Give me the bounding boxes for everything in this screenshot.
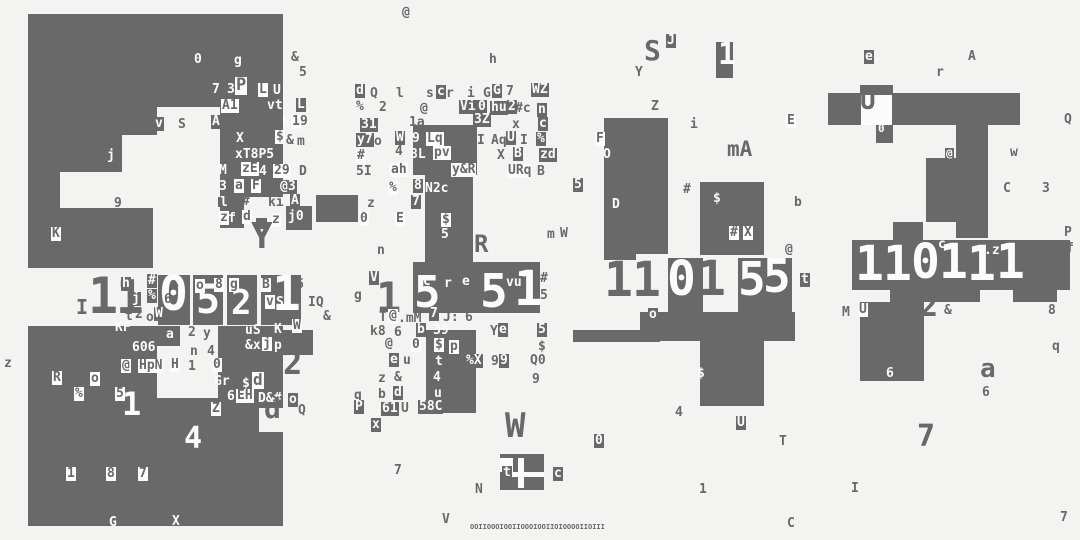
glyph: &: [323, 310, 331, 324]
glyph: 39: [433, 324, 449, 338]
ink-block: [1013, 290, 1057, 302]
glyph: W: [395, 131, 405, 145]
glyph: 1: [699, 483, 707, 497]
ink-block: [28, 172, 60, 208]
glyph: 31: [360, 118, 378, 132]
glyph: 4: [675, 406, 683, 420]
glyph: J: [666, 34, 676, 48]
glyph: q: [1052, 340, 1060, 354]
ink-block: [316, 195, 358, 222]
glyph: pv: [433, 146, 451, 160]
big-glyph: mA: [727, 138, 752, 160]
glyph: &x: [245, 339, 261, 353]
glyph: 9: [491, 355, 499, 369]
big-glyph: 5: [480, 267, 508, 315]
glyph: e: [171, 280, 179, 294]
glyph: 3: [1042, 182, 1050, 196]
big-glyph: 2: [920, 291, 938, 323]
glyph: Lq: [426, 132, 444, 146]
glyph: @: [420, 102, 428, 116]
glyph: 29: [273, 164, 291, 178]
glyph: 1a: [409, 116, 425, 130]
glyph: o: [374, 135, 382, 149]
glyph: 7: [394, 464, 402, 478]
glyph: o: [146, 311, 154, 325]
glyph: vu: [505, 276, 523, 290]
glyph: EH: [236, 389, 254, 403]
glyph: %X: [465, 354, 483, 368]
glyph: f: [1066, 242, 1074, 256]
glyph: $: [538, 340, 546, 354]
glyph: @: [945, 148, 954, 160]
big-glyph: 1: [122, 388, 141, 422]
glyph: G: [109, 516, 117, 530]
bg-cutout: [122, 160, 157, 172]
glyph: 5I: [356, 165, 372, 179]
glyph: vt: [267, 99, 283, 113]
glyph: E: [395, 212, 405, 226]
glyph: 6: [982, 386, 990, 400]
glyph: &: [394, 371, 402, 385]
glyph: t: [502, 466, 512, 480]
big-glyph: 1: [855, 239, 884, 289]
glyph: H: [170, 358, 180, 372]
glyph: B: [261, 278, 271, 292]
glyph: r: [444, 277, 452, 291]
glyph: o: [288, 393, 298, 407]
big-glyph: 4: [184, 423, 202, 455]
glyph: 6: [296, 278, 304, 292]
glyph: b: [416, 323, 426, 337]
glyph: 61: [381, 402, 399, 416]
glyph: p: [449, 340, 459, 354]
glyph: I: [477, 134, 485, 148]
glyph: c: [938, 238, 946, 252]
glyph: @: [121, 359, 131, 373]
big-glyph: 0: [667, 254, 696, 304]
glyph: 8: [1048, 304, 1056, 318]
glyph: j: [262, 337, 272, 351]
glyph: e: [498, 323, 508, 337]
glyph: Q: [298, 404, 306, 418]
glyph: c: [423, 275, 431, 289]
glyph: &: [944, 304, 952, 318]
glyph: y: [203, 327, 211, 341]
glyph: p: [274, 339, 282, 353]
glyph: uS: [245, 324, 261, 338]
glyph: IQ: [308, 296, 324, 310]
glyph: g: [354, 289, 362, 303]
glyph: %: [536, 132, 546, 146]
glyph: g: [229, 278, 239, 292]
glyph: c: [553, 467, 563, 481]
glyph: 4: [259, 165, 267, 179]
glyph: A: [968, 50, 976, 64]
glyph: X: [497, 149, 505, 163]
bg-cutout: [153, 207, 220, 268]
glyph: #: [540, 272, 548, 286]
big-glyph: 2: [283, 347, 302, 381]
glyph: z: [4, 357, 12, 371]
glyph: 8L: [410, 148, 426, 162]
glyph: c: [538, 117, 548, 131]
big-glyph: S: [644, 36, 661, 65]
glyph: HpN: [138, 359, 163, 373]
glyph: b: [794, 196, 802, 210]
glyph: #: [356, 149, 366, 163]
glyph: P: [354, 400, 364, 414]
glyph: s: [426, 87, 434, 101]
glyph: 6: [227, 390, 235, 404]
glyph: j0: [288, 210, 304, 224]
glyph: xT8P5: [235, 148, 274, 162]
glyph: K: [274, 323, 282, 337]
glyph: T: [779, 435, 787, 449]
glyph: #: [729, 226, 739, 240]
glyph: U: [736, 416, 746, 430]
ink-block: [28, 107, 157, 135]
glyph: T: [379, 311, 387, 325]
glyph: 7: [138, 467, 148, 481]
glyph: A: [211, 115, 221, 129]
glyph: z: [367, 197, 375, 211]
glyph: O: [603, 148, 611, 162]
glyph: 7: [429, 307, 439, 321]
big-glyph: W: [505, 409, 525, 445]
glyph: &: [291, 51, 299, 65]
glyph: y7: [356, 133, 374, 147]
glyph: L: [296, 98, 306, 112]
glyph: 3: [227, 83, 235, 97]
glyph: 7: [506, 85, 514, 99]
glyph: U: [273, 84, 281, 98]
glyph: $: [275, 130, 285, 144]
big-glyph: a: [980, 356, 996, 383]
ink-block: [700, 341, 764, 406]
glyph: 3Z: [473, 113, 491, 127]
glyph: L: [258, 83, 268, 97]
glyph: 5: [441, 228, 449, 242]
glyph: h: [489, 53, 497, 67]
glyph: e: [462, 275, 470, 289]
glyph: 4: [433, 371, 441, 385]
glyph: 1: [66, 467, 76, 481]
glyph: P: [1064, 226, 1072, 240]
glyph: X: [172, 515, 180, 529]
glyph: #c: [515, 102, 531, 116]
glyph: #: [683, 183, 691, 197]
glyph: e: [864, 50, 874, 64]
glyph: %: [388, 181, 398, 195]
glyph: e: [389, 353, 399, 367]
glyph: 0: [878, 123, 885, 135]
glyph: F: [251, 179, 261, 193]
glyph: G: [492, 84, 502, 98]
glyph: t: [800, 273, 810, 287]
glyph: n: [377, 244, 385, 258]
big-glyph: 0: [911, 237, 940, 287]
glyph: 9: [412, 132, 420, 146]
glyph: %: [147, 289, 157, 303]
glyph: Q0: [530, 354, 546, 368]
glyph: D: [612, 198, 620, 212]
glyph: C: [787, 517, 795, 531]
glyph: C: [1003, 182, 1011, 196]
glyph: 0: [194, 53, 202, 67]
glyph: 6: [164, 293, 172, 307]
glyph: 9: [300, 115, 308, 129]
glyph: 5: [299, 66, 307, 80]
glyph: zE: [241, 162, 259, 176]
glyph: c: [436, 85, 446, 99]
glyph: 9: [532, 373, 540, 387]
glyph: M: [842, 306, 850, 320]
glyph: m: [297, 135, 305, 149]
glyph: W: [292, 319, 302, 333]
glyph: t: [435, 355, 443, 369]
glyph: k8: [370, 325, 386, 339]
glyph: 58C: [418, 400, 443, 414]
big-glyph: 1: [632, 255, 661, 305]
glyph: Aq: [491, 134, 507, 148]
glyph: n: [190, 345, 198, 359]
glyph: WZ: [531, 83, 549, 97]
glyph: w: [1010, 146, 1018, 160]
glyph: #: [147, 274, 157, 288]
glyph: K: [51, 227, 61, 241]
glyph: #: [242, 195, 250, 209]
glyph: o: [648, 308, 658, 322]
glyph: h: [121, 277, 131, 291]
glyph: j: [131, 292, 141, 306]
ink-block: [828, 93, 1020, 125]
glyph: 7: [1060, 511, 1068, 525]
glyph: 6: [394, 326, 402, 340]
glyph: U: [401, 402, 409, 416]
glyph: 6: [886, 367, 894, 381]
glyph: g: [234, 54, 242, 68]
glyph: $: [713, 192, 721, 206]
glyph: B: [513, 147, 523, 161]
glyph: ki: [268, 196, 284, 210]
glyph: 5: [573, 178, 583, 192]
ink-block: [28, 208, 153, 268]
glyph: R: [52, 371, 62, 385]
big-glyph: 7: [917, 421, 935, 453]
glyph: l: [220, 196, 228, 210]
glyph: 5: [537, 323, 547, 337]
glyph: d: [393, 386, 403, 400]
glyph: Z: [211, 402, 221, 416]
glyph: D: [299, 165, 307, 179]
big-glyph: R: [474, 232, 488, 257]
glyph: 5: [540, 289, 548, 303]
glyph: 8: [413, 179, 423, 193]
glyph: $: [697, 367, 705, 381]
glyph: j: [107, 149, 115, 163]
glyph: f: [466, 340, 474, 354]
glyph: f: [228, 212, 236, 226]
big-glyph: U: [860, 88, 876, 115]
glyph: @: [388, 309, 398, 323]
glyph: zd: [539, 148, 557, 162]
glyph: Z: [651, 100, 659, 114]
glyph: i: [690, 118, 698, 132]
big-glyph: 1: [604, 255, 633, 305]
glyph: 9: [499, 354, 509, 368]
glyph: X: [743, 226, 753, 240]
glyph: $: [434, 338, 444, 352]
big-glyph: 1: [88, 270, 118, 323]
glyph: ah: [390, 163, 408, 177]
glyph: A1: [221, 99, 239, 113]
glyph: 606: [132, 341, 155, 355]
glyph: &: [286, 134, 294, 148]
glyph: 9: [114, 197, 122, 211]
ink-block: [926, 158, 988, 222]
glyph: URq: [507, 164, 532, 178]
bg-cutout: [180, 326, 218, 346]
glyph: 2: [379, 101, 387, 115]
glyph: U: [506, 131, 516, 145]
glyph: W: [560, 227, 568, 241]
glyph: %: [74, 387, 84, 401]
glyph: @3: [279, 180, 297, 194]
glyph: 0: [411, 338, 421, 352]
glyph: I: [76, 297, 88, 318]
glyph: v: [154, 117, 164, 131]
glyph: M: [219, 164, 227, 178]
glyph: Q: [1064, 113, 1072, 127]
glyph: @: [402, 6, 410, 20]
glyph: .z: [984, 244, 1000, 258]
glyph: 7: [411, 195, 421, 209]
glyph: 6: [465, 311, 473, 325]
glyph: A: [290, 194, 300, 208]
glyph: l: [396, 87, 404, 101]
glyph: B: [537, 165, 545, 179]
glyph: N: [475, 483, 483, 497]
glyph: d: [252, 372, 264, 389]
glyph: a: [165, 328, 175, 342]
glyph: @: [385, 337, 393, 351]
glyph: P: [235, 77, 247, 95]
glyph: KF: [115, 321, 131, 335]
glyph: o: [90, 372, 100, 386]
glyph: a: [234, 179, 244, 193]
big-glyph: d: [264, 394, 281, 423]
glyph: Q: [370, 87, 378, 101]
glyph: 2: [135, 308, 143, 322]
glyph: hu: [490, 101, 508, 115]
glyph: Y: [490, 325, 498, 339]
glyph: X: [236, 132, 244, 146]
ink-block: [604, 118, 668, 254]
ink-block: [28, 326, 283, 526]
big-glyph: Y: [251, 218, 273, 256]
glyph: 0: [212, 358, 222, 372]
bg-cutout: [60, 172, 153, 208]
glyph: r: [936, 66, 944, 80]
glyph: V: [442, 513, 450, 527]
big-glyph: 1: [718, 39, 736, 71]
glyph: z: [378, 372, 386, 386]
glyph: 2: [188, 326, 196, 340]
big-glyph: 5: [763, 252, 791, 300]
big-glyph: 5: [738, 255, 766, 303]
glyph: @: [785, 243, 793, 257]
big-glyph: 1: [996, 237, 1025, 287]
glyph: 3: [219, 180, 227, 194]
glyph: d: [355, 84, 365, 98]
glyph: U: [858, 303, 868, 317]
glyph: u: [403, 354, 411, 368]
glyph: W: [154, 307, 164, 321]
glyph: v: [265, 295, 275, 309]
glyph: F: [595, 132, 605, 146]
glyph: E: [786, 114, 796, 128]
glyph: S: [276, 296, 284, 310]
glyph: x: [371, 418, 381, 432]
glyph: %: [356, 100, 364, 114]
glyph: 8: [106, 467, 116, 481]
glyph: m: [547, 228, 555, 242]
glyph: 0: [359, 212, 369, 226]
glyph: S: [178, 118, 186, 132]
ink-block: [956, 125, 988, 158]
big-glyph: 1: [883, 239, 912, 289]
glyph: Gr: [214, 375, 230, 389]
glyph: 8: [214, 278, 224, 292]
ink-block: [640, 312, 795, 341]
glyph: 0: [594, 434, 604, 448]
glyph: n: [537, 103, 547, 117]
glyph: Y: [635, 66, 643, 80]
glyph: y&R: [451, 163, 476, 177]
barcode-text: OOIIOOOIOOIIOOOIOOIIOIOOOOIIOIII: [470, 523, 605, 531]
big-glyph: 1: [697, 254, 726, 304]
artwork-canvas: 1105211551110155110111@h0g&573PLUA1vtLvS…: [0, 0, 1080, 540]
glyph: o: [195, 279, 205, 293]
glyph: N2c: [425, 182, 448, 196]
glyph: $: [441, 213, 451, 227]
glyph: I: [851, 482, 859, 496]
glyph: 7: [212, 83, 220, 97]
glyph: b: [378, 388, 386, 402]
glyph: 1: [188, 360, 196, 374]
ink-block: [700, 182, 764, 255]
glyph: r: [446, 87, 454, 101]
glyph: 4: [395, 145, 403, 159]
glyph: V: [369, 271, 379, 285]
